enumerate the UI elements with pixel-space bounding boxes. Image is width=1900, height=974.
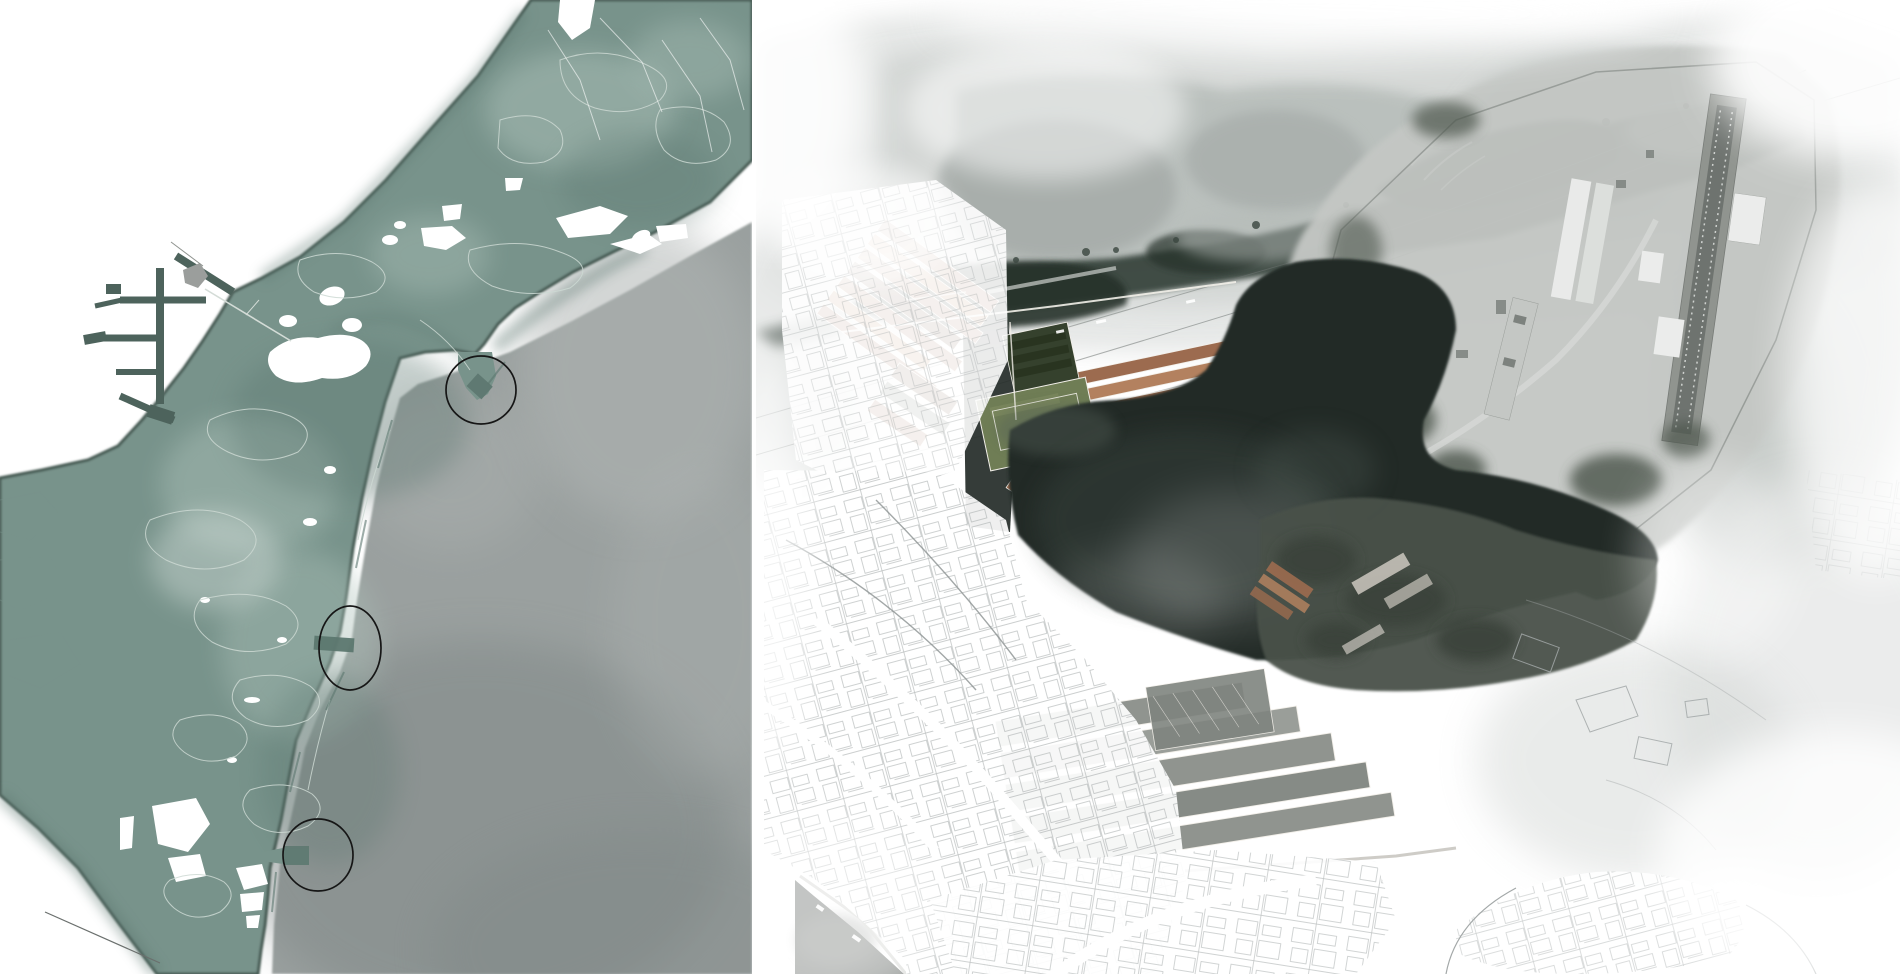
arsenale-aerial-panel [756,0,1900,974]
lagoon-overview-panel [0,0,752,974]
two-panel-map-collage [0,0,1900,974]
